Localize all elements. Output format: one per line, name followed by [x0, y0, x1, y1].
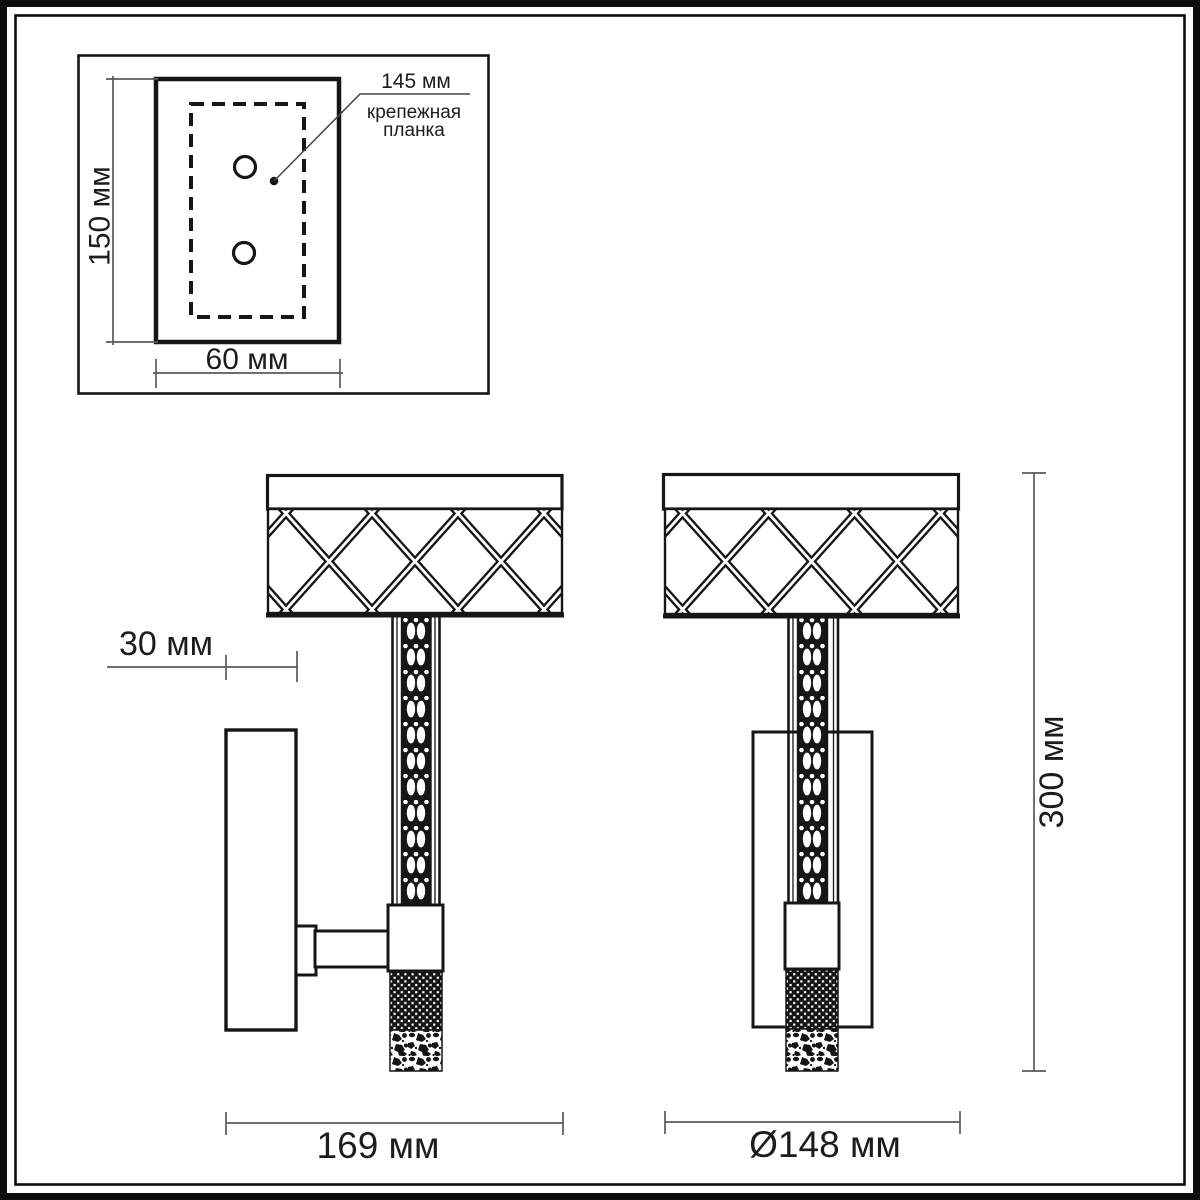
height-dimension: 300 мм [1022, 473, 1071, 1071]
callout-caption-line2: планка [383, 120, 445, 141]
shade-crystal-band [665, 509, 958, 614]
shade-crystal-band [268, 509, 562, 613]
backplate-width-dim-label: 60 мм [206, 343, 289, 376]
mounting-plate-detail-panel: 145 мм крепежная планка 150 мм 60 мм [79, 56, 489, 394]
side-width-dim-label: 169 мм [317, 1125, 440, 1166]
support-arm [315, 931, 389, 967]
depth-dim-label: 30 мм [119, 625, 213, 663]
backplate-height-dim-label: 150 мм [84, 166, 117, 266]
diffuser-dotted [390, 972, 442, 1030]
screw-hole-bottom [234, 243, 255, 264]
lamp-dimension-drawing-page: 145 мм крепежная планка 150 мм 60 мм [0, 0, 1200, 1200]
callout-value-label: 145 мм [381, 70, 451, 93]
lamp-holder [388, 905, 443, 971]
diffuser-speckled [390, 1030, 442, 1071]
stem-chain-ornament [402, 617, 432, 906]
sconce-side-view: 30 мм 169 мм [107, 476, 564, 1167]
side-width-dimension: 169 мм [226, 1112, 563, 1166]
shade-top-band [268, 476, 563, 510]
diameter-dim-label: Ø148 мм [749, 1124, 901, 1165]
shade-top-band [664, 475, 959, 510]
height-dim-label: 300 мм [1033, 716, 1071, 829]
wall-plate-side [226, 730, 296, 1030]
lamp-dimension-drawing: 145 мм крепежная планка 150 мм 60 мм [0, 0, 1200, 1200]
lamp-holder [785, 903, 839, 969]
backplate-outline [156, 79, 339, 342]
sconce-front-view: Ø148 мм 300 мм [663, 473, 1071, 1165]
stem-side [393, 617, 440, 906]
screw-hole-top [235, 157, 256, 178]
diffuser-dotted [786, 970, 838, 1029]
diffuser-speckled [786, 1029, 838, 1071]
depth-dimension: 30 мм [107, 625, 298, 682]
stem-chain-ornament [798, 617, 828, 904]
mounting-bracket [296, 926, 316, 975]
diameter-dimension: Ø148 мм [665, 1111, 960, 1165]
